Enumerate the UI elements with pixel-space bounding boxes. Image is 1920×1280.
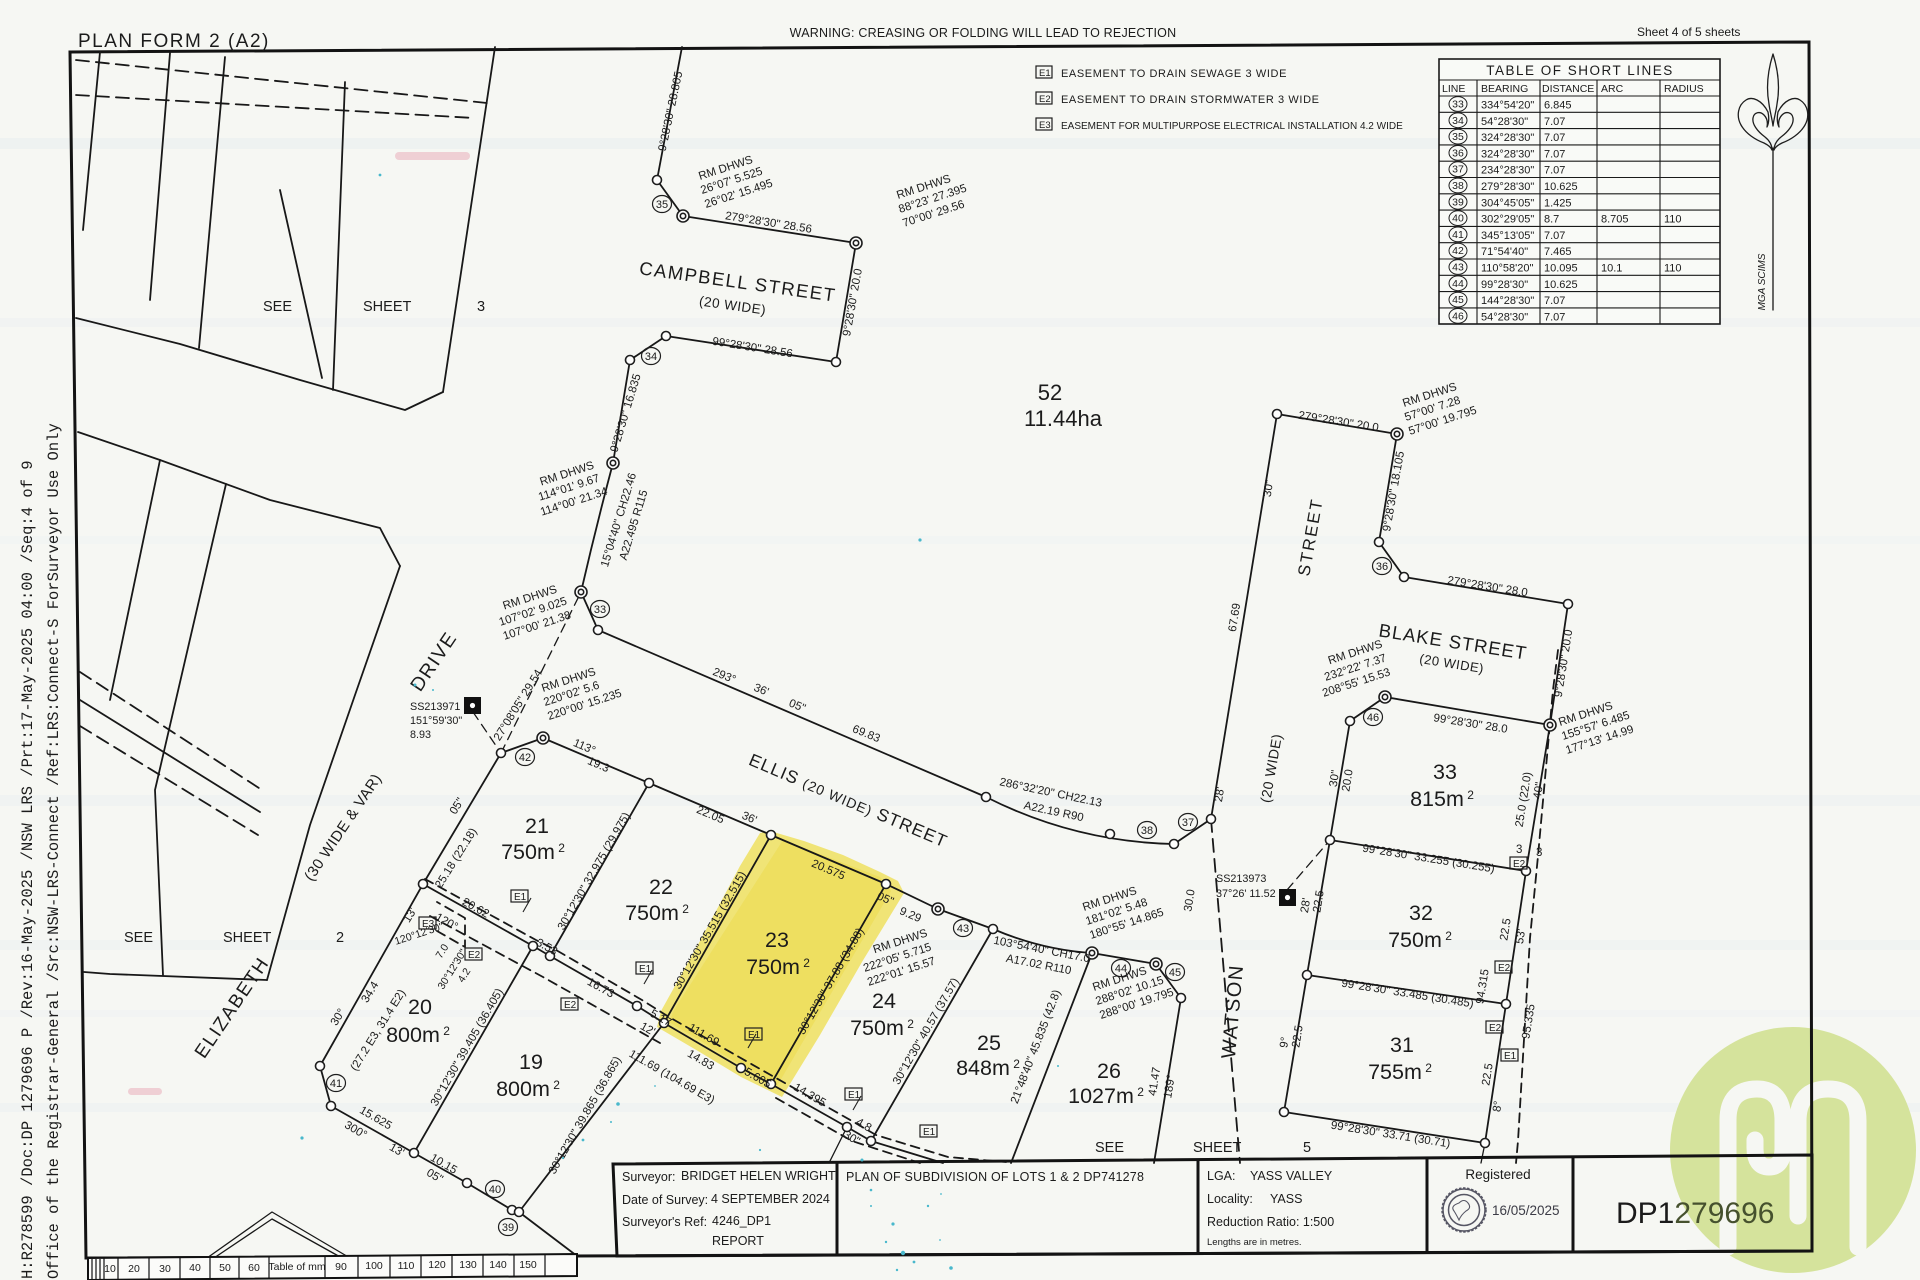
svg-text:8.7: 8.7	[1544, 214, 1559, 226]
svg-text:39: 39	[502, 1222, 514, 1234]
svg-text:46: 46	[1367, 712, 1379, 724]
svg-text:19: 19	[519, 1050, 543, 1074]
svg-text:Locality:: Locality:	[1207, 1192, 1253, 1206]
svg-text:E2: E2	[1498, 963, 1511, 974]
svg-text:37°26' 11.52: 37°26' 11.52	[1216, 888, 1276, 900]
svg-text:Sheet 4 of 5 sheets: Sheet 4 of 5 sheets	[1637, 25, 1740, 39]
svg-text:7.07: 7.07	[1544, 116, 1565, 128]
svg-text:130: 130	[459, 1259, 477, 1271]
svg-text:324°28'30": 324°28'30"	[1481, 148, 1534, 160]
svg-text:EASEMENT TO DRAIN STORMWATER 3: EASEMENT TO DRAIN STORMWATER 3 WIDE	[1061, 94, 1320, 106]
svg-text:REPORT: REPORT	[712, 1234, 764, 1248]
svg-text:E1: E1	[1039, 68, 1051, 79]
svg-text:SHEET: SHEET	[1193, 1140, 1241, 1156]
svg-text:31: 31	[1390, 1033, 1414, 1057]
svg-text:60: 60	[248, 1262, 260, 1274]
svg-text:YASS: YASS	[1270, 1192, 1302, 1206]
svg-text:23: 23	[765, 928, 789, 952]
svg-text:SS213971: SS213971	[410, 701, 460, 713]
svg-text:40: 40	[489, 1184, 501, 1196]
svg-text:Surveyor:: Surveyor:	[622, 1170, 676, 1184]
svg-text:110: 110	[1664, 263, 1682, 275]
svg-text:10: 10	[104, 1263, 116, 1275]
svg-text:E3: E3	[1039, 120, 1051, 131]
svg-text:36: 36	[1452, 147, 1464, 159]
svg-text:Office of the Registrar-Genera: Office of the Registrar-General /Src:NSW…	[45, 423, 63, 1279]
svg-text:24: 24	[872, 989, 896, 1013]
svg-text:43: 43	[1452, 262, 1464, 274]
svg-text:6.845: 6.845	[1544, 100, 1572, 112]
svg-text:5: 5	[1303, 1140, 1311, 1156]
svg-text:28': 28'	[1213, 786, 1227, 803]
svg-text:1.425: 1.425	[1544, 197, 1572, 209]
svg-text:33: 33	[594, 604, 606, 616]
svg-text:110°58'20": 110°58'20"	[1481, 263, 1534, 275]
svg-text:10.1: 10.1	[1601, 263, 1622, 275]
svg-text:41: 41	[1452, 229, 1464, 241]
svg-text:E2: E2	[468, 950, 481, 961]
svg-text:1027m 2: 1027m 2	[1068, 1084, 1144, 1108]
svg-text:PLAN FORM 2 (A2): PLAN FORM 2 (A2)	[78, 31, 270, 52]
svg-text:40: 40	[1452, 213, 1464, 225]
svg-text:E1: E1	[514, 892, 527, 903]
svg-text:4 SEPTEMBER 2024: 4 SEPTEMBER 2024	[711, 1192, 830, 1206]
svg-text:42: 42	[519, 752, 531, 764]
svg-text:E2: E2	[1489, 1023, 1502, 1034]
svg-text:7.07: 7.07	[1544, 295, 1565, 307]
svg-text:YASS VALLEY: YASS VALLEY	[1250, 1169, 1333, 1183]
svg-text:345°13'05": 345°13'05"	[1481, 230, 1534, 242]
svg-text:40: 40	[189, 1262, 201, 1274]
svg-text:34: 34	[645, 351, 657, 363]
svg-text:37: 37	[1182, 817, 1194, 829]
svg-text:33: 33	[1452, 99, 1464, 111]
svg-text:140: 140	[489, 1259, 507, 1271]
svg-text:ARC: ARC	[1601, 83, 1624, 95]
svg-text:EASEMENT FOR MULTIPURPOSE ELEC: EASEMENT FOR MULTIPURPOSE ELECTRICAL INS…	[1061, 121, 1403, 132]
svg-text:10.625: 10.625	[1544, 279, 1578, 291]
svg-text:7.07: 7.07	[1544, 230, 1565, 242]
svg-text:324°28'30": 324°28'30"	[1481, 132, 1534, 144]
svg-text:22: 22	[649, 875, 673, 899]
svg-text:8.93: 8.93	[410, 729, 431, 741]
svg-text:151°59'30": 151°59'30"	[410, 715, 462, 727]
svg-text:E1: E1	[748, 1030, 761, 1041]
svg-text:8.705: 8.705	[1601, 214, 1629, 226]
svg-text:7.07: 7.07	[1544, 132, 1565, 144]
svg-text:110: 110	[398, 1260, 415, 1272]
svg-text:36: 36	[1376, 561, 1388, 573]
svg-text:3: 3	[1536, 847, 1542, 859]
svg-text:21: 21	[525, 814, 549, 838]
svg-text:Table of mm: Table of mm	[268, 1261, 325, 1273]
svg-text:PLAN OF SUBDIVISION OF LOT: PLAN OF SUBDIVISION OF LOTS 1 & 2 DP7412…	[846, 1170, 1144, 1184]
svg-text:7.07: 7.07	[1544, 148, 1565, 160]
svg-text:SEE: SEE	[263, 299, 292, 315]
svg-text:H:R278599 /Doc:DP 1279696 P /R: H:R278599 /Doc:DP 1279696 P /Rev:16-May-…	[19, 460, 37, 1279]
svg-text:SEE: SEE	[124, 930, 153, 946]
svg-text:43: 43	[957, 923, 969, 935]
svg-text:BRIDGET HELEN WRIGHT: BRIDGET HELEN WRIGHT	[681, 1169, 836, 1183]
svg-text:Surveyor's Ref:: Surveyor's Ref:	[622, 1215, 707, 1229]
svg-text:334°54'20": 334°54'20"	[1481, 100, 1534, 112]
svg-text:30: 30	[159, 1263, 171, 1275]
svg-text:45: 45	[1452, 294, 1464, 306]
svg-text:Reduction Ratio: 1:500: Reduction Ratio: 1:500	[1207, 1215, 1334, 1229]
svg-text:RADIUS: RADIUS	[1664, 83, 1704, 95]
svg-text:EASEMENT TO DRAIN SEWAGE 3 WID: EASEMENT TO DRAIN SEWAGE 3 WIDE	[1061, 68, 1287, 80]
svg-text:E2: E2	[1039, 94, 1051, 105]
svg-text:LGA:: LGA:	[1207, 1169, 1236, 1183]
svg-text:7.07: 7.07	[1544, 311, 1565, 323]
svg-text:4246_DP1: 4246_DP1	[712, 1214, 771, 1228]
svg-text:3: 3	[1516, 844, 1522, 856]
svg-text:E1: E1	[923, 1127, 936, 1138]
svg-text:SHEET: SHEET	[363, 299, 411, 315]
svg-text:20: 20	[128, 1263, 140, 1275]
svg-text:10.095: 10.095	[1544, 263, 1578, 275]
svg-text:8°: 8°	[1491, 1100, 1505, 1113]
svg-text:54°28'30": 54°28'30"	[1481, 116, 1528, 128]
svg-text:302°29'05": 302°29'05"	[1481, 214, 1534, 226]
svg-text:52: 52	[1038, 380, 1062, 405]
svg-text:2: 2	[336, 930, 344, 946]
svg-text:SS213973: SS213973	[1216, 873, 1266, 885]
svg-text:SHEET: SHEET	[223, 930, 271, 946]
svg-text:304°45'05": 304°45'05"	[1481, 197, 1534, 209]
svg-text:46: 46	[1452, 310, 1464, 322]
svg-text:54°28'30": 54°28'30"	[1481, 311, 1528, 323]
svg-text:38: 38	[1452, 180, 1464, 192]
svg-text:TABLE OF SHORT LINES: TABLE OF SHORT LINES	[1486, 63, 1674, 78]
svg-text:25: 25	[977, 1031, 1001, 1055]
svg-text:37: 37	[1452, 164, 1464, 176]
svg-text:7.465: 7.465	[1544, 246, 1572, 258]
svg-text:SEE: SEE	[1095, 1140, 1124, 1156]
svg-text:E1: E1	[1504, 1051, 1517, 1062]
svg-text:50: 50	[219, 1262, 231, 1274]
svg-text:100: 100	[365, 1260, 383, 1272]
svg-text:44: 44	[1452, 278, 1464, 290]
svg-text:DP1279696: DP1279696	[1616, 1197, 1774, 1230]
svg-text:33: 33	[1433, 760, 1457, 784]
svg-text:144°28'30": 144°28'30"	[1481, 295, 1534, 307]
svg-text:32: 32	[1409, 901, 1433, 925]
svg-text:Date of Survey:: Date of Survey:	[622, 1193, 708, 1207]
svg-text:35: 35	[656, 199, 668, 211]
svg-text:42: 42	[1452, 245, 1464, 257]
svg-text:Lengths are in metres.: Lengths are in metres.	[1207, 1237, 1302, 1248]
svg-text:90: 90	[335, 1261, 347, 1273]
svg-text:110: 110	[1664, 214, 1682, 226]
svg-text:Registered: Registered	[1465, 1167, 1530, 1182]
svg-text:3: 3	[477, 299, 485, 315]
svg-text:BEARING: BEARING	[1481, 83, 1528, 95]
svg-text:DISTANCE: DISTANCE	[1542, 83, 1594, 95]
svg-text:39: 39	[1452, 196, 1464, 208]
svg-text:11.44ha: 11.44ha	[1024, 406, 1103, 431]
svg-text:279°28'30": 279°28'30"	[1481, 181, 1534, 193]
svg-text:34: 34	[1452, 115, 1464, 127]
svg-text:53': 53'	[1514, 928, 1528, 945]
svg-text:45: 45	[1169, 967, 1181, 979]
svg-text:234°28'30": 234°28'30"	[1481, 165, 1534, 177]
svg-text:16/05/2025: 16/05/2025	[1492, 1203, 1560, 1218]
svg-text:26: 26	[1097, 1059, 1121, 1083]
svg-text:99°28'30": 99°28'30"	[1481, 279, 1528, 291]
svg-text:150: 150	[519, 1259, 537, 1271]
svg-text:71°54'40": 71°54'40"	[1481, 246, 1528, 258]
svg-text:E2: E2	[564, 1000, 577, 1011]
svg-text:E2: E2	[1513, 859, 1526, 870]
svg-text:35: 35	[1452, 131, 1464, 143]
svg-text:WARNING: CREASING OR FOLDIN: WARNING: CREASING OR FOLDING WILL LEAD T…	[790, 26, 1177, 40]
svg-text:38: 38	[1141, 825, 1153, 837]
svg-text:MGA SCIMS: MGA SCIMS	[1757, 253, 1768, 310]
svg-text:LINE: LINE	[1442, 83, 1465, 95]
svg-text:10.625: 10.625	[1544, 181, 1578, 193]
svg-text:41: 41	[330, 1078, 342, 1090]
svg-text:20: 20	[408, 995, 432, 1019]
svg-text:7.07: 7.07	[1544, 165, 1565, 177]
svg-text:120: 120	[428, 1259, 446, 1271]
